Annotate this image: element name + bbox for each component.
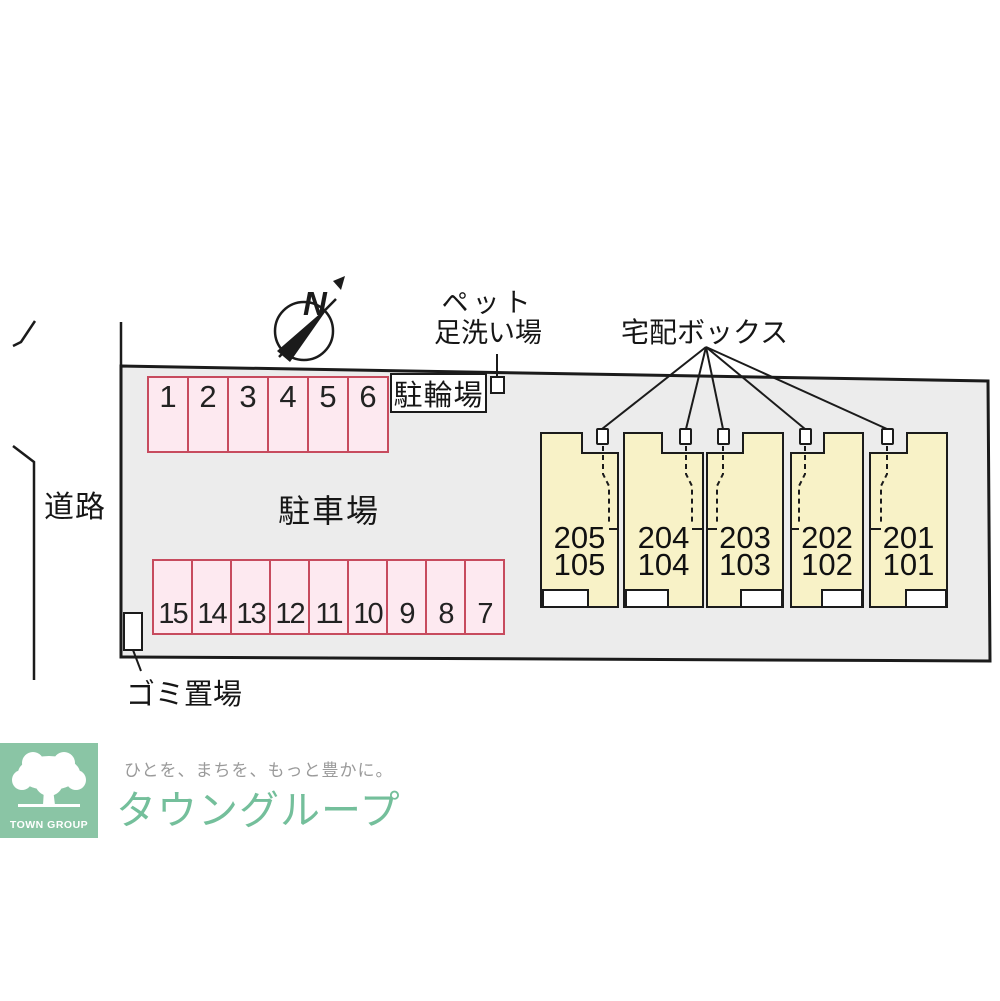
parking-row-top: 1 2 3 4 5 6: [147, 376, 389, 453]
parking-row-bottom: 15 14 13 12 11 10 9 8 7: [152, 559, 505, 635]
parking-space: 15: [154, 561, 191, 633]
unit-number-lower: 102: [801, 547, 853, 582]
parking-space-number: 6: [359, 379, 376, 415]
parking-space: 13: [230, 561, 269, 633]
parking-space-number: 4: [279, 379, 296, 415]
parking-space: 9: [386, 561, 425, 633]
parking-space-number: 10: [353, 598, 381, 631]
unit-label-202-102: 202 102: [791, 524, 863, 578]
logo-text: TOWN GROUP: [0, 819, 98, 831]
parking-space: 1: [149, 378, 187, 451]
parking-space: 11: [308, 561, 347, 633]
parking-space-number: 9: [399, 598, 413, 631]
north-arrowhead: [333, 276, 345, 290]
site-plan-drawing: N: [0, 0, 1000, 1001]
parking-space-number: 7: [477, 598, 491, 631]
parking-space: 3: [227, 378, 267, 451]
parking-space: 4: [267, 378, 307, 451]
unit-entrance-notch: [543, 590, 588, 607]
parking-space-number: 2: [199, 379, 216, 415]
unit-number-lower: 103: [719, 547, 771, 582]
north-letter: N: [303, 285, 328, 322]
parking-space-number: 1: [159, 379, 176, 415]
parking-space-number: 14: [197, 598, 225, 631]
parking-space: 5: [307, 378, 347, 451]
parking-space-number: 12: [275, 598, 303, 631]
garbage-area-label: ゴミ置場: [126, 671, 242, 713]
parking-area-label: 駐車場: [278, 486, 380, 532]
unit-label-203-103: 203 103: [707, 524, 783, 578]
road-label: 道路: [44, 482, 106, 526]
delivery-box-marker: [882, 429, 893, 444]
delivery-box-marker: [800, 429, 811, 444]
road-edge-mark-bottom: [13, 446, 34, 680]
unit-entrance-notch: [906, 590, 946, 607]
pet-wash-marker: [491, 377, 504, 393]
bicycle-parking-label: 駐輪場: [393, 372, 483, 414]
unit-number-lower: 104: [638, 547, 690, 582]
parking-space-number: 5: [319, 379, 336, 415]
north-compass-icon: N: [275, 276, 345, 362]
unit-label-201-101: 201 101: [870, 524, 947, 578]
parking-space: 7: [464, 561, 503, 633]
pet-wash-label: ペット 足洗い場: [407, 288, 569, 348]
parking-space-number: 3: [239, 379, 256, 415]
pet-wash-label-line2: 足洗い場: [407, 318, 569, 348]
parking-space: 8: [425, 561, 464, 633]
delivery-box-label: 宅配ボックス: [621, 311, 788, 351]
unit-label-205-105: 205 105: [541, 524, 618, 578]
delivery-box-marker: [680, 429, 691, 444]
delivery-box-marker: [718, 429, 729, 444]
bicycle-parking-label-box: 駐輪場: [390, 373, 487, 413]
unit-entrance-notch: [626, 590, 668, 607]
parking-space-number: 8: [438, 598, 452, 631]
brand-name: タウングループ: [116, 778, 401, 836]
unit-number-lower: 105: [554, 547, 606, 582]
parking-space: 2: [187, 378, 227, 451]
site-plan-canvas: N: [0, 0, 1000, 1001]
town-group-logo: TOWN GROUP: [0, 743, 98, 838]
parking-space-number: 15: [158, 598, 186, 631]
parking-space: 10: [347, 561, 386, 633]
parking-space: 6: [347, 378, 387, 451]
parking-space: 12: [269, 561, 308, 633]
unit-entrance-notch: [822, 590, 862, 607]
garbage-area-marker: [124, 613, 142, 650]
unit-label-204-104: 204 104: [624, 524, 703, 578]
unit-number-lower: 101: [883, 547, 935, 582]
parking-space: 14: [191, 561, 230, 633]
pet-wash-label-line1: ペット: [407, 288, 569, 318]
parking-space-number: 11: [315, 598, 341, 631]
road-edge-mark-top: [13, 321, 35, 346]
parking-space-number: 13: [236, 598, 264, 631]
unit-entrance-notch: [741, 590, 782, 607]
delivery-box-marker: [597, 429, 608, 444]
